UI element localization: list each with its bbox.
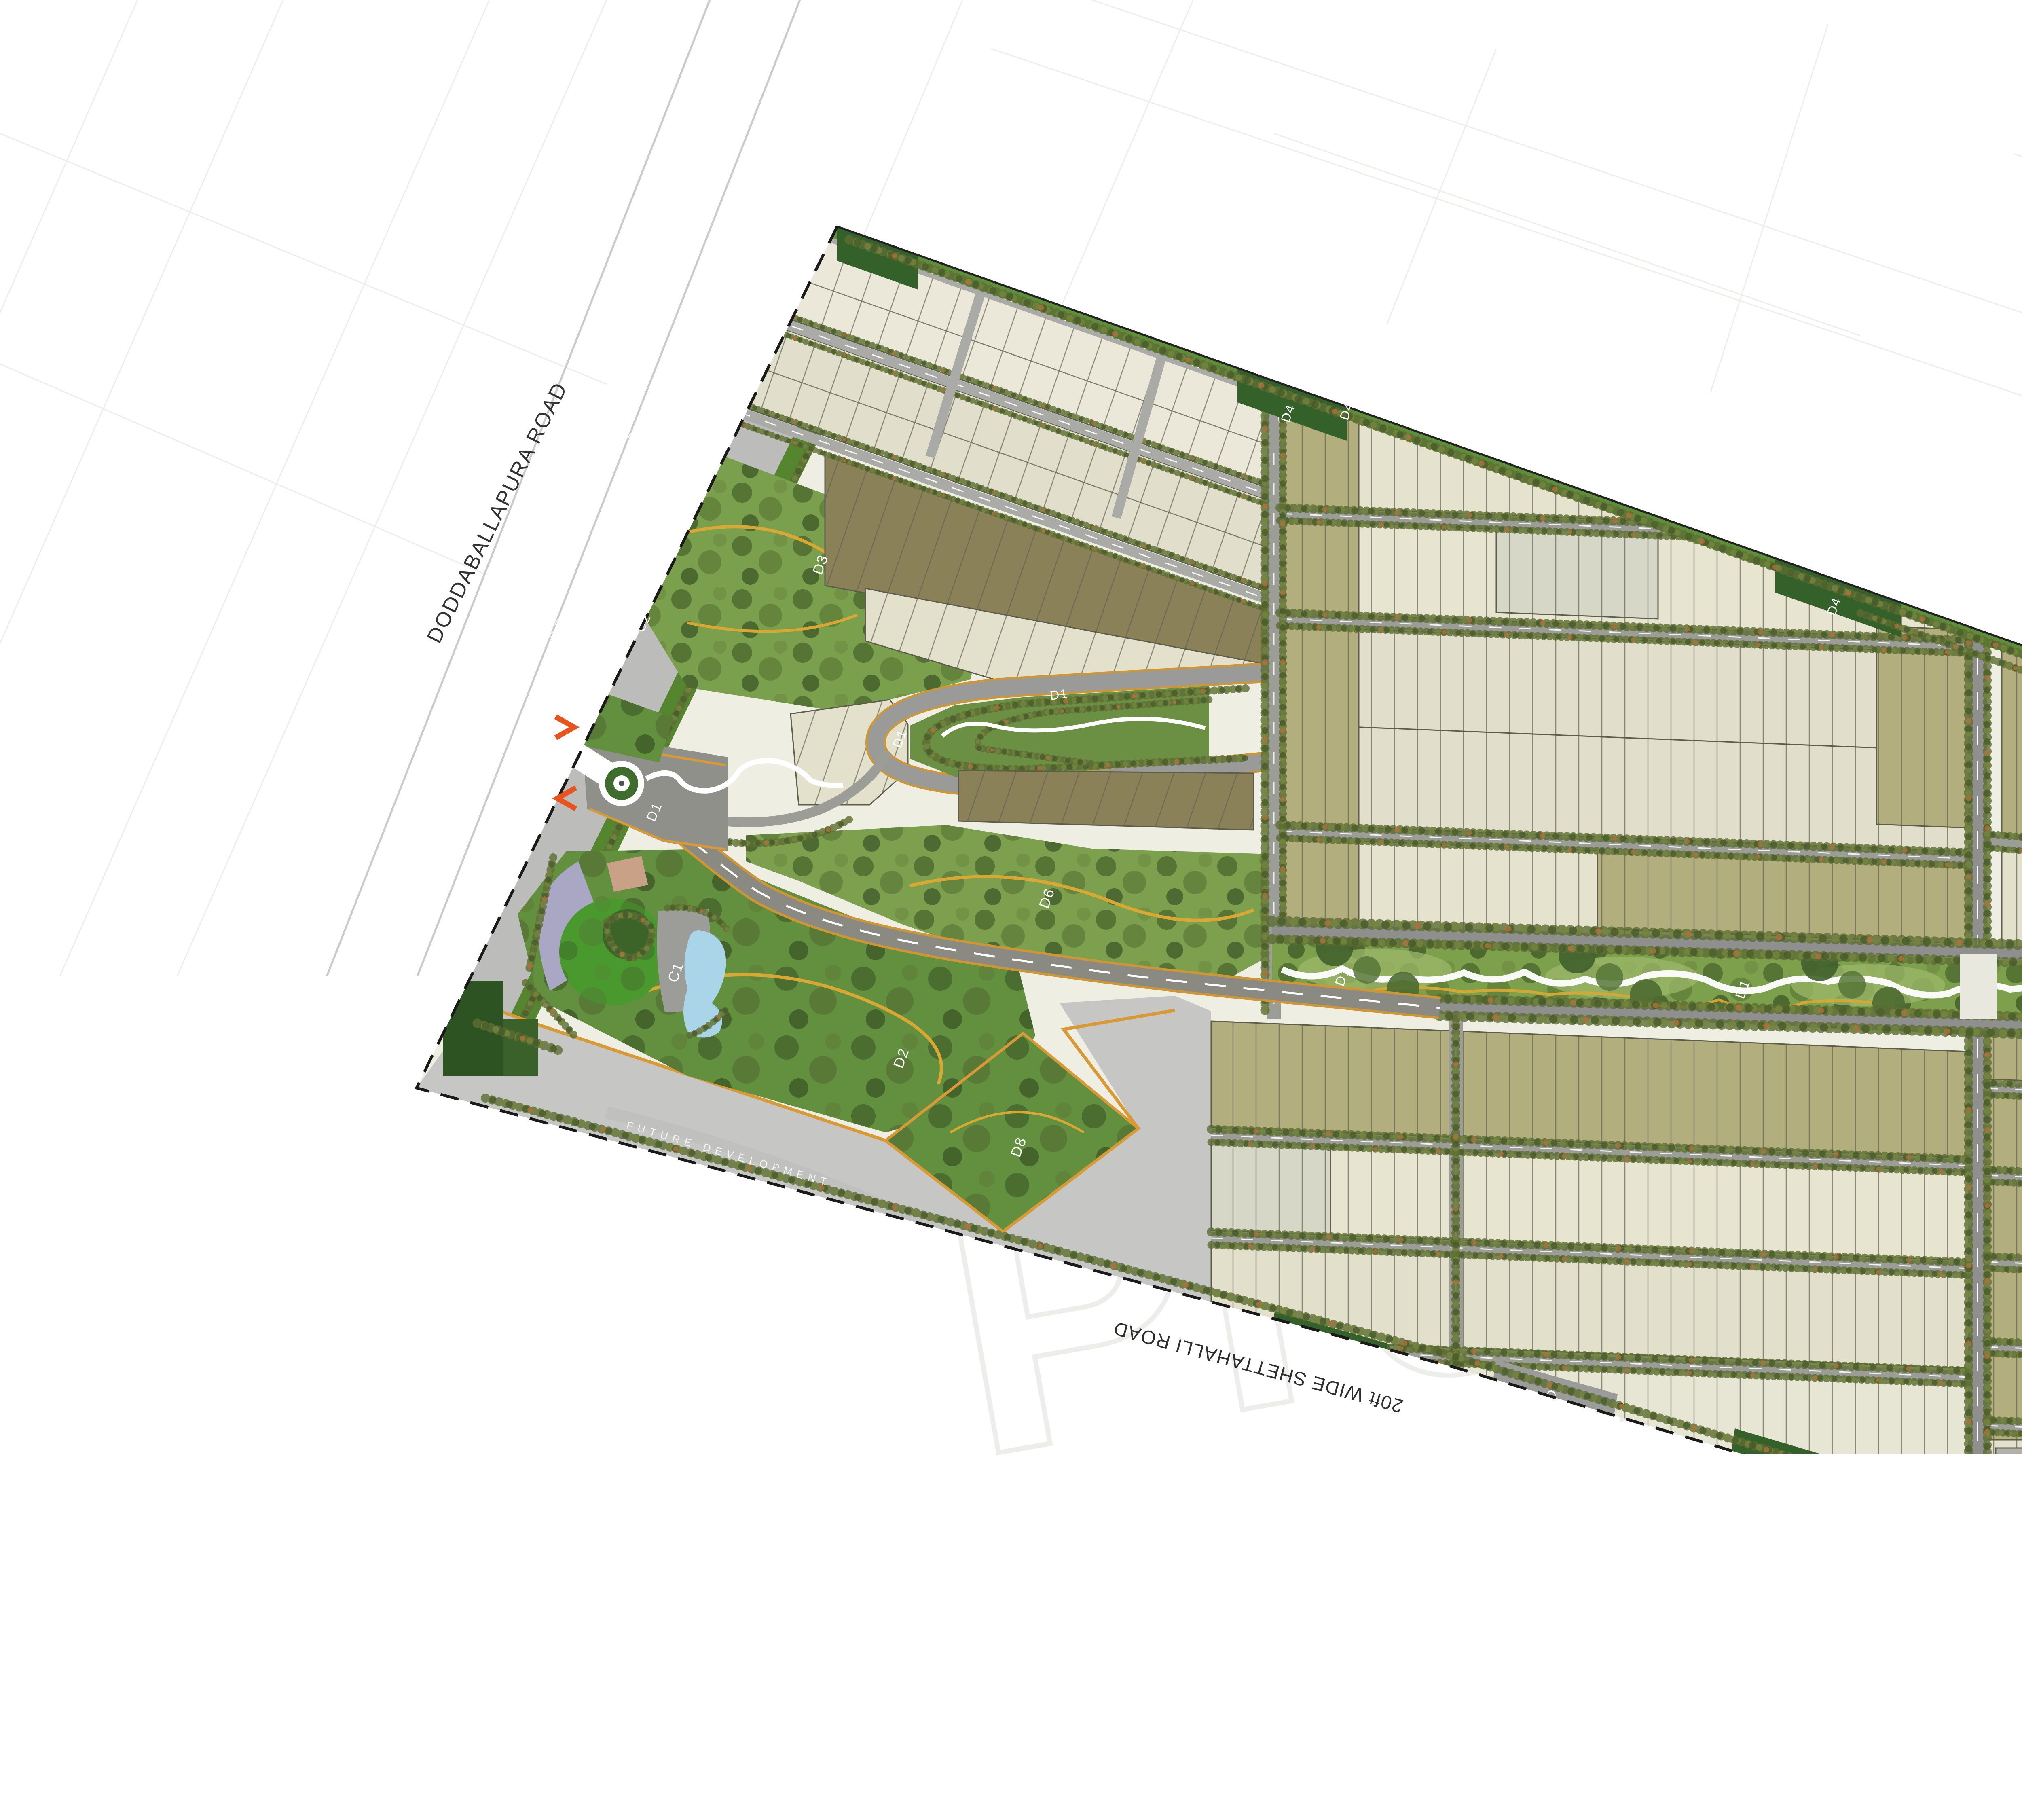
svg-text:D1: D1: [1049, 686, 1069, 703]
